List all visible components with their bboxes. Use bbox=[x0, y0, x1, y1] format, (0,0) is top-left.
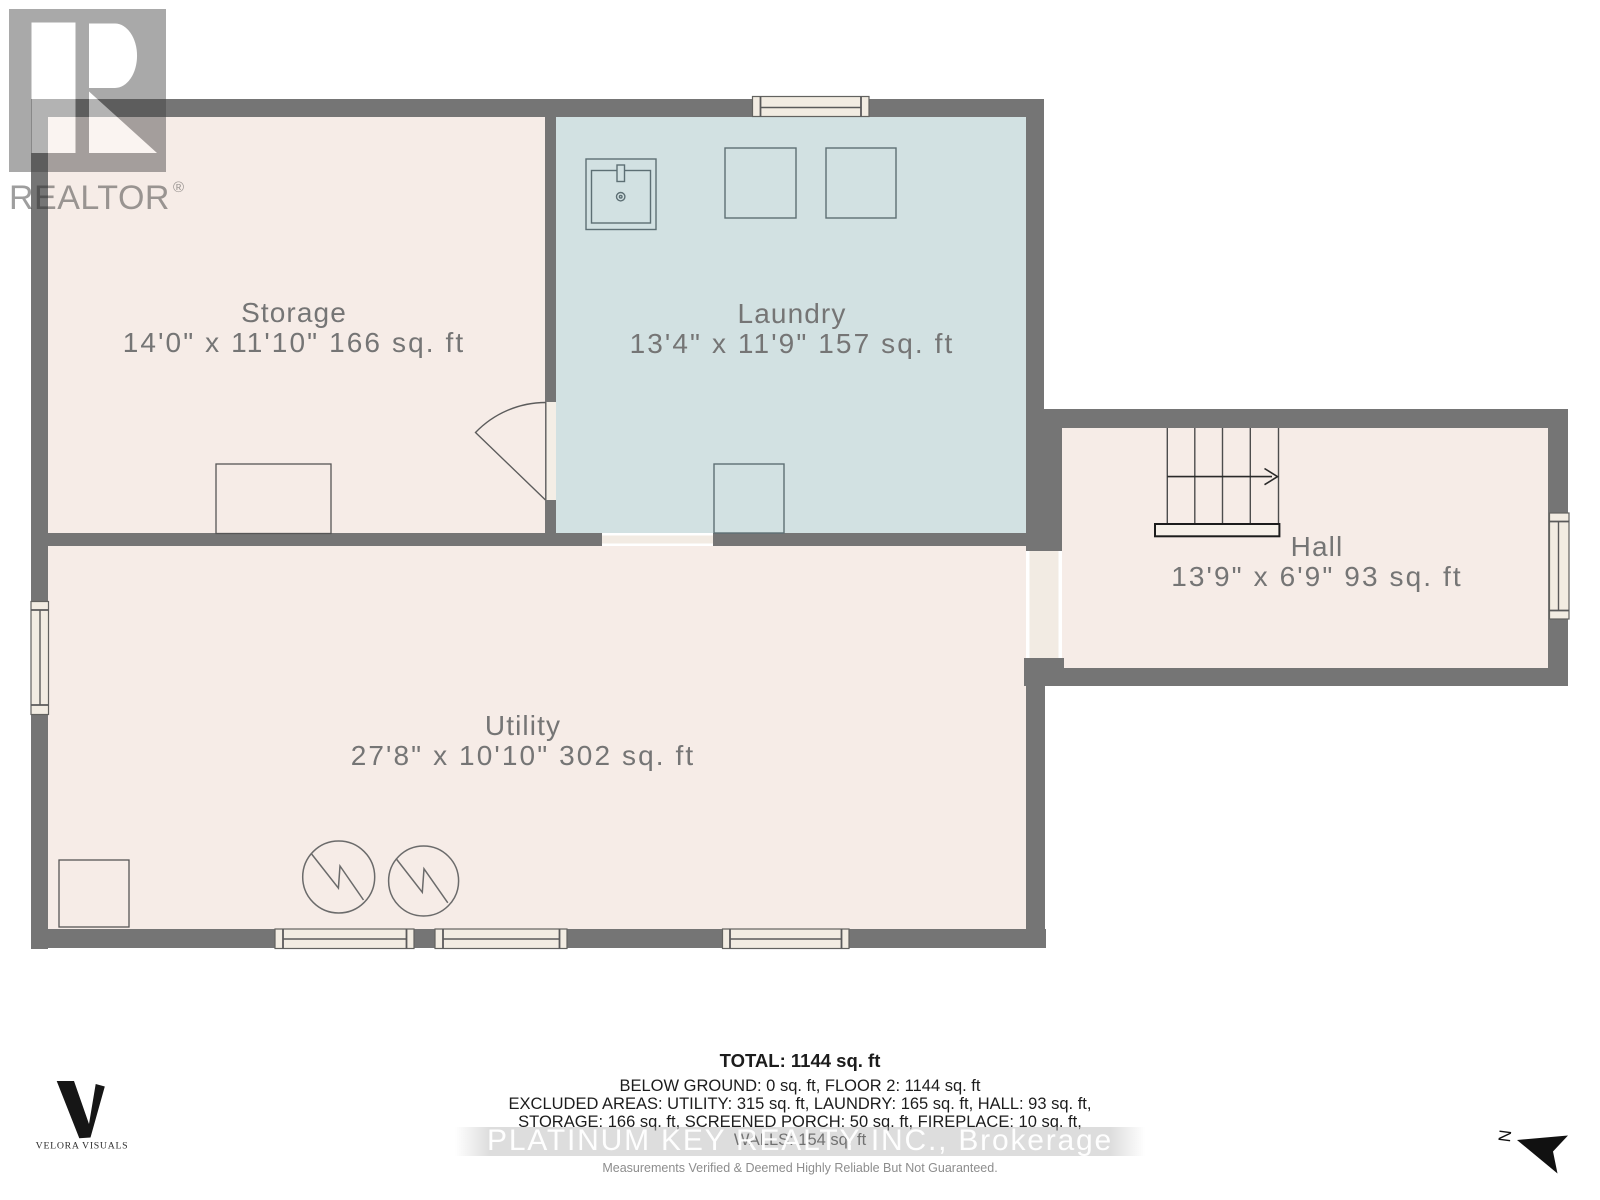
svg-text:®: ® bbox=[173, 179, 184, 196]
svg-text:REALTOR: REALTOR bbox=[9, 179, 170, 217]
